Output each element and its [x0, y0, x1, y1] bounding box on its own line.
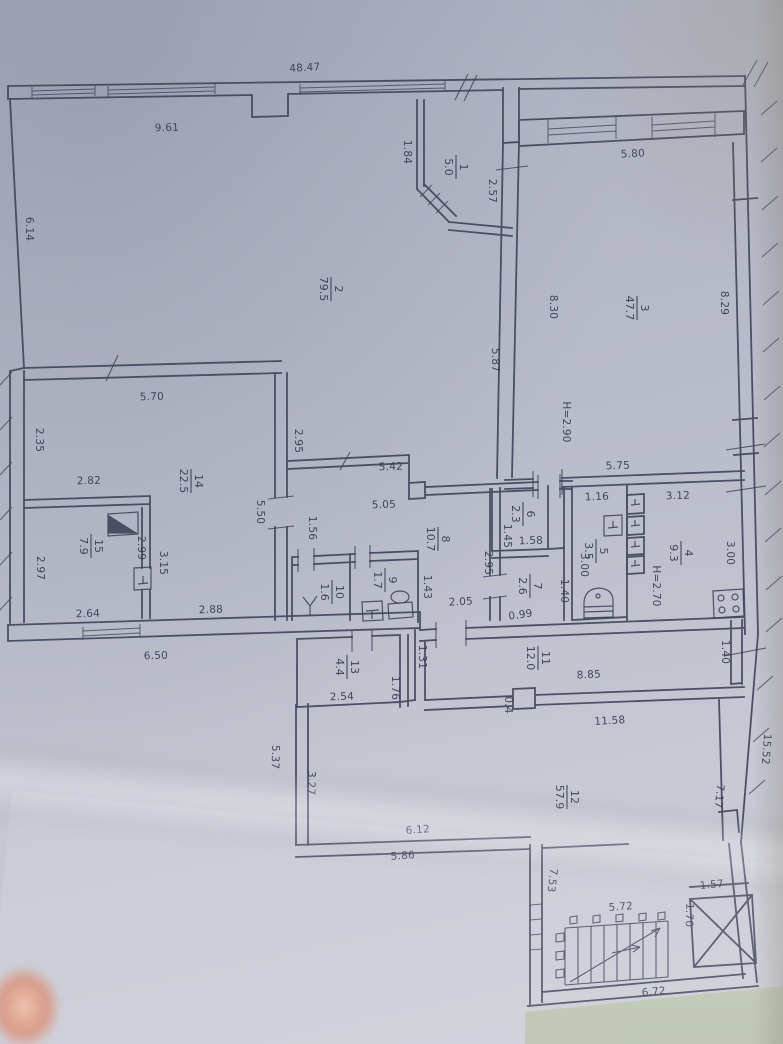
dimension-label: 5.87	[489, 348, 501, 372]
room-number: 14	[192, 474, 205, 488]
fixtures	[108, 499, 744, 621]
room-area: 2.3	[509, 505, 522, 523]
dimension-label: 7.17	[712, 784, 726, 809]
dimension-label: 1.40	[558, 579, 570, 603]
right-outer-sloped-wall	[741, 634, 758, 842]
exterior-left-wall	[10, 99, 24, 625]
room12-walls	[296, 700, 739, 857]
room-number: 8	[439, 536, 452, 543]
dimension-label: 8.30	[547, 295, 559, 319]
room-label: 49.3	[667, 541, 695, 565]
stove-burner-icon	[718, 595, 724, 601]
dimension-label: 1.45	[501, 524, 513, 548]
staircase	[556, 912, 668, 985]
room-label: 134.4	[333, 655, 361, 679]
dimension-label: 1.84	[401, 140, 413, 164]
room-number: 13	[348, 660, 361, 674]
room-area: 47.7	[623, 296, 636, 321]
tick-marks	[106, 74, 766, 656]
room-labels: 15.0279.5347.749.353.562.372.6810.791.71…	[77, 155, 695, 809]
stove-burner-icon	[733, 606, 739, 612]
dimension-label: 0.4	[502, 696, 514, 713]
dimension-label: H=2.70	[650, 565, 662, 606]
electrical-panel-fill	[109, 516, 136, 533]
room-label: 810.7	[424, 527, 452, 552]
room-area: 1.6	[318, 583, 331, 601]
room-number: 7	[531, 583, 544, 590]
room-area: 1.7	[371, 571, 384, 589]
room-number: 2	[332, 286, 345, 293]
dimension-label: 1.70	[683, 903, 696, 928]
room11-walls	[415, 617, 744, 710]
dimension-label: 5.86	[390, 849, 415, 863]
room-label: 157.9	[77, 534, 105, 558]
dimension-label: 1.16	[585, 491, 610, 504]
elevator-shaft	[690, 895, 756, 967]
dimension-label: 2.05	[448, 595, 473, 608]
dimension-label: 3.27	[305, 771, 318, 796]
dimension-label: 3.12	[666, 490, 691, 503]
room-number: 11	[539, 651, 552, 665]
toilet-bowl-icon	[391, 591, 409, 603]
dimension-labels: 48.479.616.141.842.575.808.298.305.87H=2…	[23, 61, 773, 999]
room-label: 279.5	[317, 277, 345, 302]
bottom-wall-left-block	[8, 612, 420, 641]
dimension-label: 2.99	[135, 536, 147, 560]
room-number: 6	[524, 511, 537, 518]
walls	[8, 76, 758, 1006]
dimension-label: 2.35	[33, 428, 45, 452]
dimension-label: 3.00	[724, 541, 736, 565]
dimension-label: 48.47	[289, 61, 321, 75]
toilet2-icon	[584, 588, 613, 618]
room-area: 22.5	[177, 469, 190, 494]
room-label: 1112.0	[524, 646, 552, 671]
dimension-label: 1.58	[519, 535, 544, 548]
room-number: 15	[92, 539, 105, 553]
dimension-label: 1.56	[306, 516, 318, 540]
room-label: 91.7	[371, 568, 399, 592]
dimension-label: 3.15	[157, 551, 169, 575]
dimension-label: 9.61	[155, 122, 180, 135]
dimension-label: 1.57	[699, 878, 724, 892]
dimension-label: 2.95	[482, 551, 494, 575]
wall-pier	[503, 88, 519, 143]
dimension-label: 2.95	[292, 429, 304, 453]
diagonal-window-hatch	[420, 185, 448, 213]
room-label: 62.3	[509, 502, 537, 526]
room-label: 15.0	[442, 155, 470, 179]
room-number: 5	[597, 548, 610, 555]
stove-burner-icon	[732, 594, 738, 600]
room-number: 1	[457, 164, 470, 171]
dimension-label: 5.80	[620, 147, 645, 160]
corner-hatch-marks	[743, 60, 768, 87]
room-area: 12.0	[524, 646, 537, 671]
dimension-label: 2.97	[34, 556, 46, 580]
floor-plan-drawing: 48.479.616.141.842.575.808.298.305.87H=2…	[0, 0, 783, 1044]
dimension-label: 6.12	[405, 823, 430, 837]
dimension-label: 2.57	[486, 179, 498, 203]
dimension-label: 1.43	[421, 575, 433, 599]
dimension-label: H=2.90	[560, 401, 572, 442]
sink-icon	[362, 601, 383, 621]
stair-direction-line	[570, 928, 660, 982]
wall-fixture-icon	[604, 515, 622, 536]
dimension-label: 8.29	[718, 291, 730, 315]
dimension-label: 6.72	[641, 985, 666, 999]
dimension-label: 5.70	[140, 391, 165, 404]
room3-left-wall	[497, 142, 519, 478]
room-area: 3.5	[582, 542, 595, 560]
room-number: 9	[386, 577, 399, 584]
dimension-label: 11.58	[594, 714, 626, 728]
dimension-label: 5.72	[608, 900, 633, 914]
room2-bottom-walls	[287, 455, 572, 499]
stove-burner-icon	[719, 607, 725, 613]
room-area: 4.4	[333, 658, 346, 676]
room-label: 101.6	[318, 580, 346, 604]
stove-icon	[713, 589, 744, 618]
room-number: 10	[333, 585, 346, 599]
toilet2-button-icon	[596, 594, 600, 598]
toilet-icon	[388, 602, 413, 619]
dimension-label: 15.52	[759, 733, 773, 765]
dimension-label: 5.50	[254, 500, 266, 524]
room-number: 4	[682, 550, 695, 557]
floorplan-photo: 48.479.616.141.842.575.808.298.305.87H=2…	[0, 0, 783, 1044]
dimension-label: 0.99	[508, 607, 534, 622]
dimension-label: 1.40	[719, 640, 731, 664]
stair-window	[530, 904, 542, 950]
dimension-label: 2.54	[330, 691, 355, 704]
dimension-label: 6.50	[144, 650, 169, 663]
drain-icon	[303, 596, 317, 615]
dimension-label: 5.37	[269, 745, 282, 770]
room-label: 1257.9	[553, 785, 581, 810]
room-area: 2.6	[516, 577, 529, 595]
dimension-label: 2.88	[199, 604, 224, 617]
room3-bottom-wall	[505, 471, 744, 489]
room-label: 1422.5	[177, 469, 205, 494]
room-area: 9.3	[667, 544, 680, 562]
room-label: 72.6	[516, 574, 544, 598]
room-label: 347.7	[623, 296, 651, 321]
dimension-label: 7.53	[545, 868, 560, 893]
room-label: 53.5	[582, 539, 610, 563]
room-area: 5.0	[442, 158, 455, 176]
exterior-top-wall	[8, 76, 745, 117]
dimension-label: 5.42	[379, 461, 404, 474]
room-area: 79.5	[317, 277, 330, 302]
room-number: 3	[638, 305, 651, 312]
dimension-ticks	[106, 74, 766, 656]
dimension-label: 8.85	[576, 668, 601, 681]
dimension-label: 1.31	[416, 645, 428, 669]
room-area: 57.9	[553, 785, 566, 810]
dimension-label: 6.14	[23, 217, 35, 241]
room-area: 7.9	[77, 537, 90, 555]
dimension-label: 5.75	[606, 460, 631, 473]
wall-fixture2-icon	[134, 567, 151, 590]
room-number: 12	[568, 790, 581, 804]
dimension-label: 2.64	[76, 608, 101, 621]
dimension-label: 1.76	[389, 676, 401, 700]
dimension-label: 2.82	[77, 475, 102, 488]
dimension-label: 5.05	[372, 499, 397, 512]
stair-risers	[578, 922, 656, 984]
room-area: 10.7	[424, 527, 437, 552]
